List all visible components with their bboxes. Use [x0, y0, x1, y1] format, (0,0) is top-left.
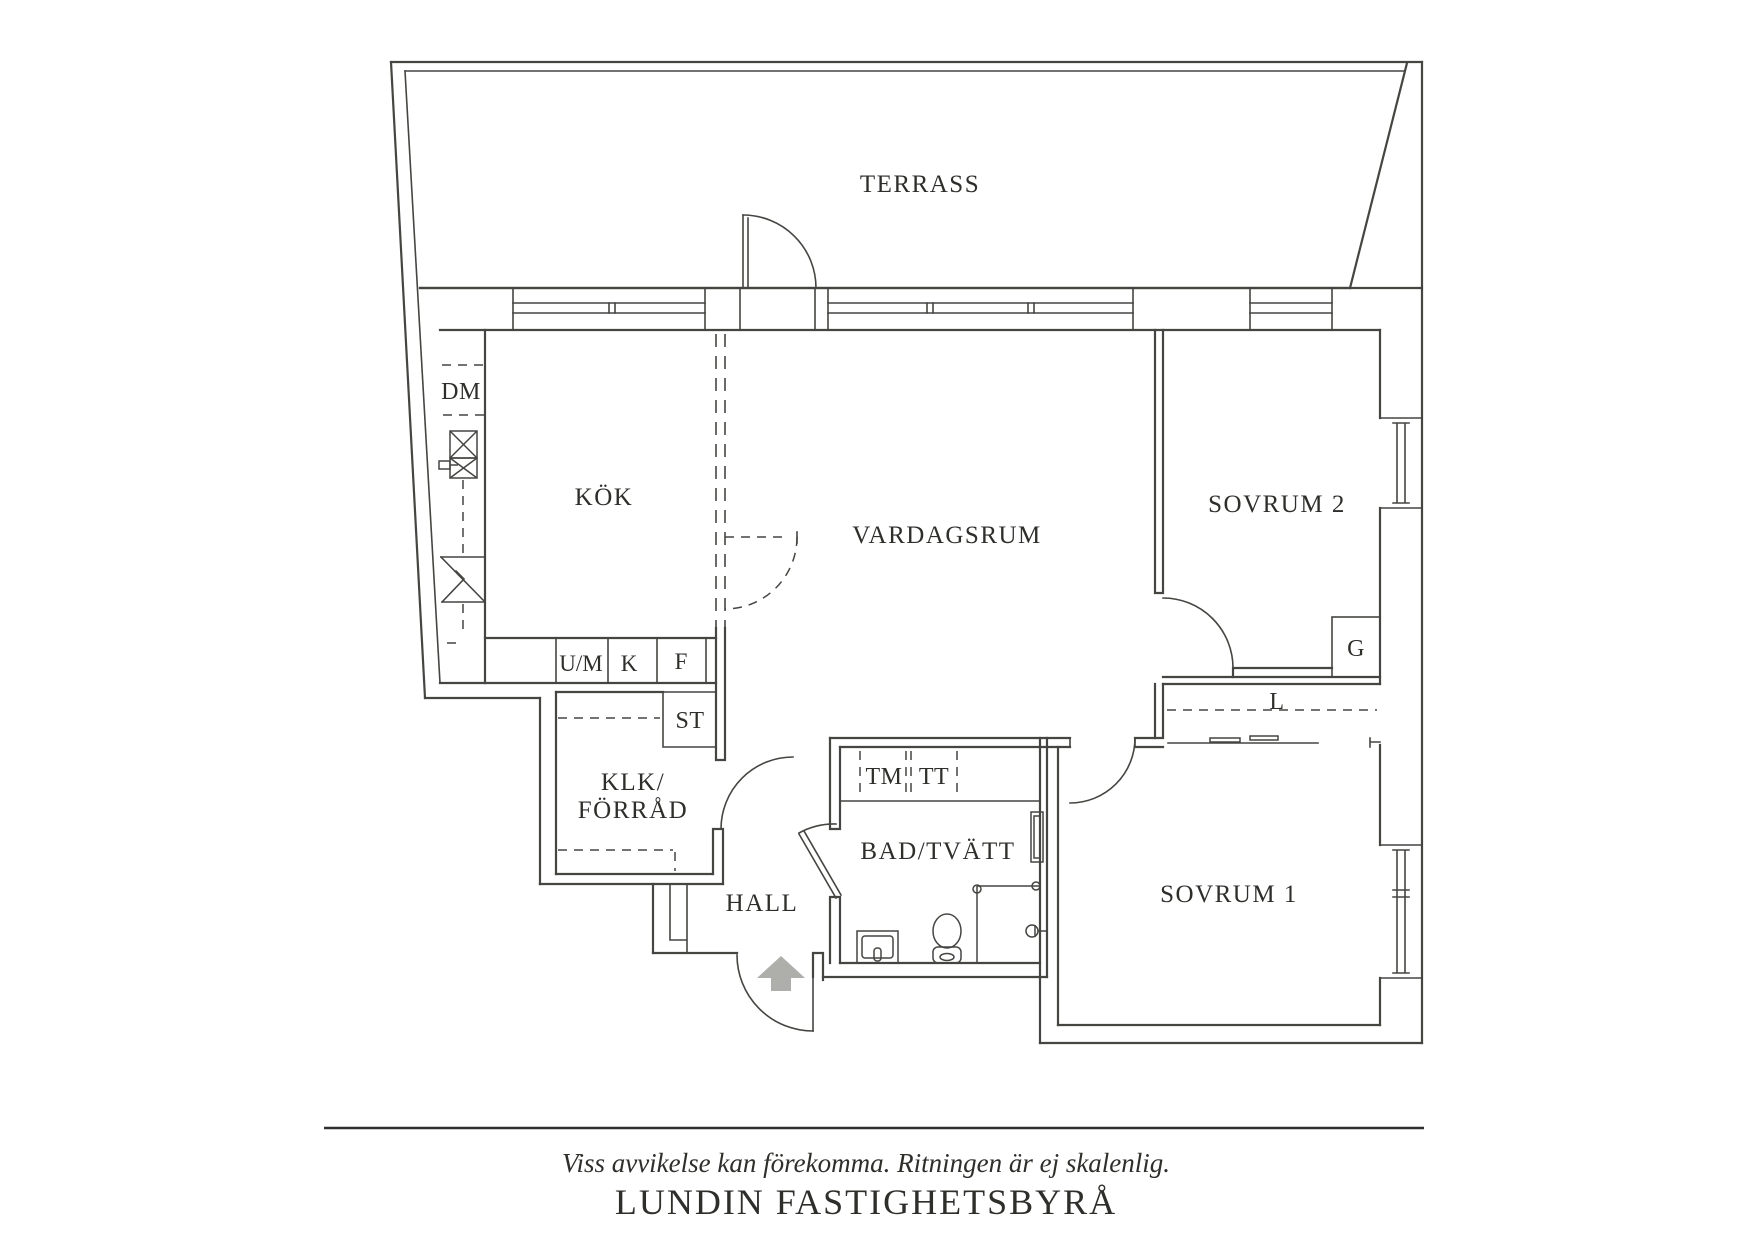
- label-freezer-f: F: [675, 649, 688, 674]
- hall-door-arc: [721, 757, 793, 829]
- kitchen-living-divider: [716, 334, 797, 760]
- sliding-door-panel: [1250, 736, 1278, 740]
- bathroom-door: [799, 824, 841, 898]
- floorplan-page: TERRASS KÖK VARDAGSRUM SOVRUM 2 SOVRUM 1…: [0, 0, 1754, 1240]
- room-label-klk-line1: KLK/: [601, 769, 665, 796]
- terrace-door: [743, 215, 816, 288]
- counter-end-icon: [441, 557, 485, 602]
- window-bedroom2-right: [1380, 418, 1422, 508]
- window-bedroom2-top: [1250, 303, 1332, 313]
- entry-arrow-icon: [757, 956, 805, 991]
- room-label-terrace: TERRASS: [860, 171, 980, 198]
- room-label-bedroom2: SOVRUM 2: [1208, 491, 1346, 518]
- label-dishwasher: DM: [441, 379, 481, 405]
- label-washer-um: U/M: [559, 651, 602, 676]
- footer-disclaimer: Viss avvikelse kan förekomma. Ritningen …: [562, 1148, 1170, 1178]
- room-label-living-room: VARDAGSRUM: [852, 522, 1042, 549]
- bathroom-fixtures: [857, 812, 1047, 963]
- north-wall-and-windows: [420, 288, 1422, 330]
- room-label-hall: HALL: [726, 890, 799, 917]
- entrance-door: [737, 955, 813, 1031]
- label-wardrobe-g: G: [1347, 636, 1365, 662]
- bedroom1-door-arc: [1070, 738, 1135, 803]
- sliding-door-panel: [1210, 738, 1240, 742]
- label-cabinet-k: K: [621, 651, 638, 676]
- room-label-klk-line2: FÖRRÅD: [578, 797, 688, 824]
- room-label-bedroom1: SOVRUM 1: [1160, 881, 1298, 908]
- room-label-bathroom: BAD/TVÄTT: [860, 838, 1015, 865]
- shower-mixer-icon: [1026, 925, 1038, 937]
- label-dryer-tt: TT: [919, 764, 949, 790]
- bedroom2-door-arc: [1163, 598, 1233, 668]
- label-cleaning-st: ST: [675, 708, 704, 734]
- floor-plan-svg: TERRASS KÖK VARDAGSRUM SOVRUM 2 SOVRUM 1…: [0, 0, 1754, 1240]
- l-closet: [1155, 684, 1380, 747]
- footer: Viss avvikelse kan förekomma. Ritningen …: [324, 1128, 1424, 1222]
- room-label-kitchen: KÖK: [575, 484, 634, 511]
- window-living-room: [828, 303, 1133, 313]
- toilet-icon: [933, 914, 961, 948]
- faucet-icon: [439, 461, 450, 469]
- label-wardrobe-l: L: [1269, 689, 1284, 715]
- footer-brand: LUNDIN FASTIGHETSBYRÅ: [615, 1182, 1117, 1222]
- window-kitchen: [513, 303, 705, 313]
- label-washing-machine-tm: TM: [866, 764, 903, 790]
- window-bedroom1-right: [1380, 845, 1422, 978]
- wall-cabinet-icon: [1031, 812, 1043, 862]
